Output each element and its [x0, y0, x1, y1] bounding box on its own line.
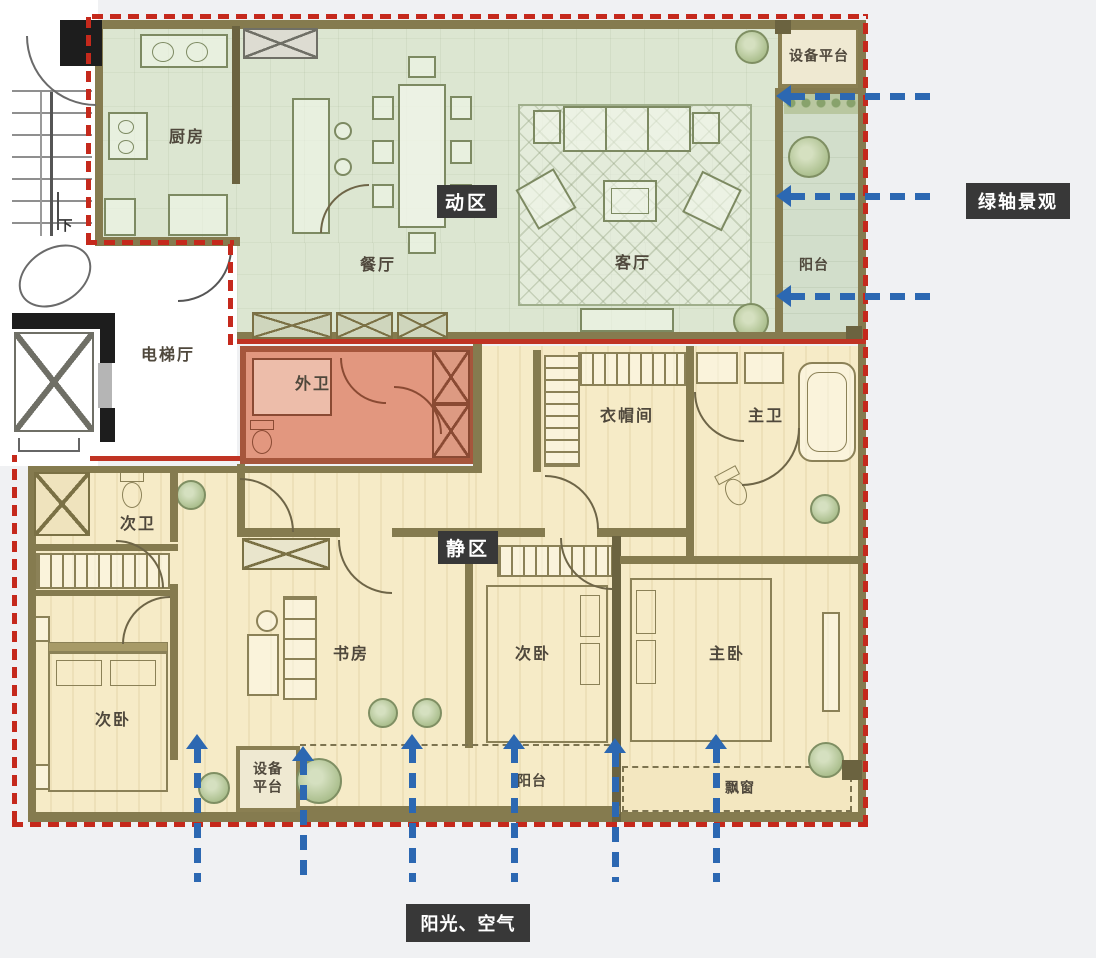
bar-stool [334, 158, 352, 176]
dresser [822, 612, 840, 712]
guest-bath-cabinet [432, 350, 470, 404]
bar-stool [334, 122, 352, 140]
plant [198, 772, 230, 804]
sunlight-arrow-1 [194, 748, 201, 882]
plant [735, 30, 769, 64]
room-label-dining: 餐厅 [360, 256, 396, 276]
room-label-equipment-top: 设备平台 [789, 47, 849, 65]
callout-green-axis: 绿轴景观 [966, 183, 1070, 219]
green-axis-arrow-3 [790, 293, 936, 300]
desk [247, 634, 279, 696]
shaft-hatch [243, 28, 318, 59]
unit-boundary-left-lower [12, 455, 17, 822]
wall-cloakroom-left2 [533, 350, 541, 472]
cabinet-hatch [336, 312, 393, 339]
sunlight-arrow-5 [612, 752, 619, 882]
room-label-guest-bath: 外卫 [295, 375, 331, 395]
tv-cabinet [580, 308, 674, 332]
study-closet [242, 538, 330, 570]
room-label-master-bath: 主卫 [748, 407, 784, 427]
room-label-bedroom-mid: 次卧 [515, 645, 551, 665]
room-label-equipment-bottom: 设备平台 [251, 761, 285, 796]
sunlight-arrow-6 [713, 748, 720, 882]
zone-badge-active: 动区 [437, 185, 497, 218]
wall [170, 466, 178, 542]
wall [170, 584, 178, 760]
unit-boundary-right [863, 14, 868, 826]
shower-box [34, 472, 90, 536]
elevator-door [98, 363, 112, 408]
zone-divider-line [237, 339, 866, 344]
dining-chair [372, 184, 394, 208]
room-label-bay-window: 飘窗 [725, 779, 755, 797]
bed [630, 578, 772, 742]
toilet-icon [250, 420, 276, 456]
wall-study-bed-divider [465, 536, 473, 748]
dining-chair [408, 232, 436, 254]
cabinet-hatch [252, 312, 332, 339]
wall-cloakroom-left [473, 343, 482, 473]
kitchen-cabinet [104, 198, 136, 236]
room-label-master-bedroom: 主卧 [709, 645, 745, 665]
room-label-cloakroom: 衣帽间 [600, 407, 654, 427]
wall [95, 20, 866, 29]
room-label-kitchen: 厨房 [169, 128, 205, 148]
cloakroom-rack [578, 352, 686, 386]
room-label-living: 客厅 [615, 254, 651, 274]
unit-boundary-kitchen-left [86, 14, 91, 244]
elevator-wall [100, 329, 115, 363]
unit-boundary-top [92, 14, 868, 19]
sunlight-arrow-3 [409, 748, 416, 882]
sunlight-arrow-2 [300, 760, 307, 882]
desk-chair [256, 610, 278, 632]
stair-stringer [50, 92, 53, 236]
lift-bottom-line [90, 456, 240, 461]
unit-boundary-lift-right [228, 243, 233, 345]
green-axis-arrow-1 [790, 93, 936, 100]
cloakroom-rack [544, 355, 580, 467]
wall-kitchen-divider [232, 26, 240, 184]
wall [28, 590, 178, 596]
sofa-side-table [692, 112, 720, 144]
stair-rail [40, 92, 42, 236]
callout-sun-air: 阳光、空气 [406, 904, 530, 942]
dining-chair [450, 140, 472, 164]
wall [28, 544, 178, 551]
elevator-wall [12, 313, 115, 329]
wall-master-top [620, 556, 866, 564]
toilet-icon [118, 472, 144, 510]
sunlight-arrow-4 [511, 748, 518, 882]
balcony-bottom-edge [300, 744, 620, 746]
balcony-top-zone [782, 88, 858, 340]
elevator-sill [18, 438, 80, 452]
plant [412, 698, 442, 728]
elevator-car [14, 332, 94, 432]
stairs-down-label: 下 [59, 217, 74, 235]
room-label-elevator-hall: 电梯厅 [141, 346, 195, 366]
floor-plan: 厨房 餐厅 客厅 阳台 设备平台 电梯厅 外卫 衣帽间 主卫 次卫 次卧 书房 … [0, 0, 1096, 958]
plant [788, 136, 830, 178]
room-label-balcony-top: 阳台 [799, 256, 829, 274]
wall-masterbath-divider [686, 346, 694, 560]
dining-chair [408, 56, 436, 78]
room-label-second-bath: 次卫 [120, 515, 156, 535]
bathtub [798, 362, 856, 462]
plant [808, 742, 844, 778]
bookshelf [283, 596, 317, 700]
plant [810, 494, 840, 524]
wall-balcony-front [300, 806, 620, 814]
sofa [563, 106, 691, 152]
room-label-bedroom-left: 次卧 [95, 711, 131, 731]
kitchen-sink-counter [140, 34, 228, 68]
stove [108, 112, 148, 160]
zone-badge-quiet: 静区 [438, 531, 498, 564]
sofa-side-table [533, 110, 561, 144]
master-bath-vanity [744, 352, 784, 384]
kitchen-counter [168, 194, 228, 236]
coffee-table [603, 180, 657, 222]
column [842, 760, 862, 780]
column [775, 20, 791, 34]
wall [28, 466, 475, 473]
green-axis-arrow-2 [790, 193, 936, 200]
plant [368, 698, 398, 728]
room-label-balcony-bottom: 阳台 [517, 772, 547, 790]
dining-chair [372, 96, 394, 120]
dining-chair [372, 140, 394, 164]
elevator-wall [100, 408, 115, 442]
plant [176, 480, 206, 510]
unit-boundary-bottom [12, 822, 868, 827]
dining-chair [450, 96, 472, 120]
unit-boundary-kitchen-bottom [86, 240, 234, 245]
cabinet-hatch [397, 312, 448, 339]
room-label-study: 书房 [333, 645, 369, 665]
master-bath-vanity [696, 352, 738, 384]
